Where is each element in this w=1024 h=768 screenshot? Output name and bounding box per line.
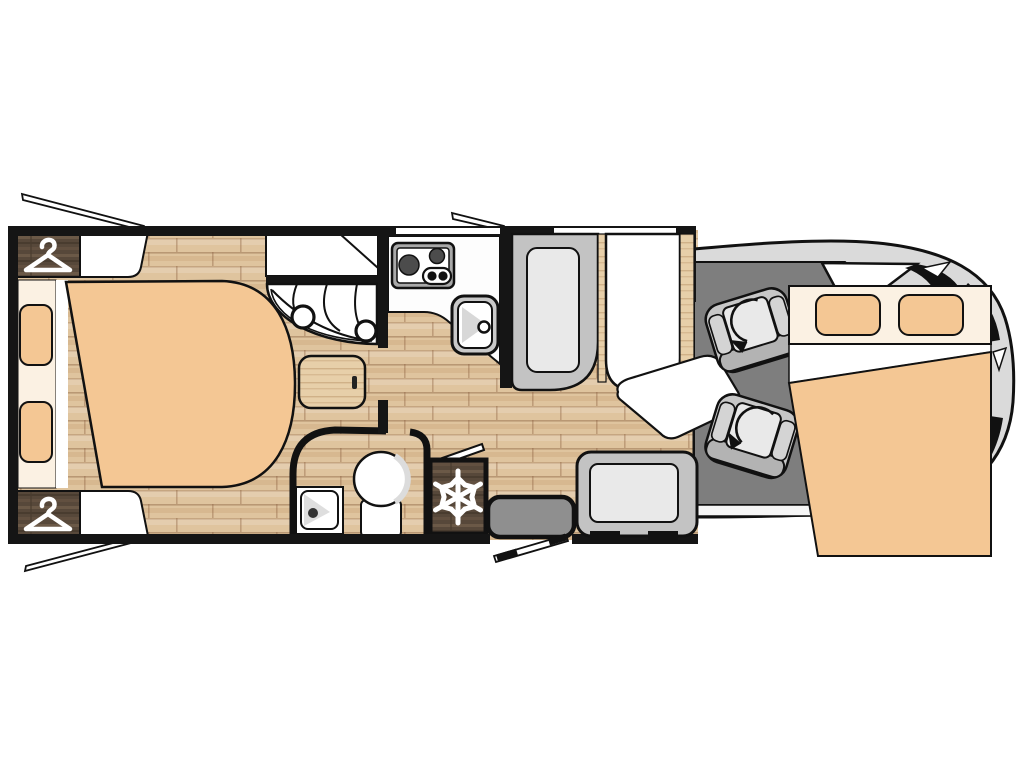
shower-wall: [266, 276, 378, 283]
wardrobe-bottom: [16, 491, 80, 536]
van-sill: [694, 505, 822, 516]
fridge: [430, 460, 486, 534]
washroom: [293, 430, 427, 538]
duvet: [66, 281, 295, 487]
wall-kitchen-dinette: [500, 230, 512, 388]
dinette-cushion-top: [527, 248, 579, 372]
window-rear-top: [80, 232, 148, 277]
dinette-bench-bottom: [577, 452, 697, 540]
window-rear-bottom: [80, 491, 148, 536]
cabinet-handle: [352, 376, 357, 389]
floorplan-svg: [0, 0, 1024, 768]
sink-icon: [452, 296, 498, 354]
bed-sheet: [56, 280, 68, 488]
wall-bottom-left: [8, 534, 490, 544]
pillow: [20, 305, 52, 365]
wardrobe-top: [16, 232, 80, 277]
drop-down-bed: [789, 286, 991, 556]
shower-head: [356, 321, 376, 341]
rear-island-bed: [18, 280, 295, 488]
wall-shower-kitchen: [378, 230, 388, 348]
dropbed-duvet: [789, 352, 991, 556]
wall-washroom-stub: [378, 400, 388, 433]
vanity-cabinet: [299, 356, 365, 408]
entry-step: [488, 497, 574, 537]
pillow: [20, 402, 52, 462]
window-kitchen-gap: [396, 228, 500, 234]
pillow: [816, 295, 880, 335]
open-window-rear-top: [22, 194, 145, 231]
pillow: [899, 295, 963, 335]
shower-head: [292, 306, 314, 328]
floorplan-canvas: [0, 0, 1024, 768]
shower-shelf: [266, 234, 378, 276]
stove-icon: [392, 243, 454, 288]
basin-tap: [308, 508, 318, 518]
wall-rear: [8, 226, 18, 544]
